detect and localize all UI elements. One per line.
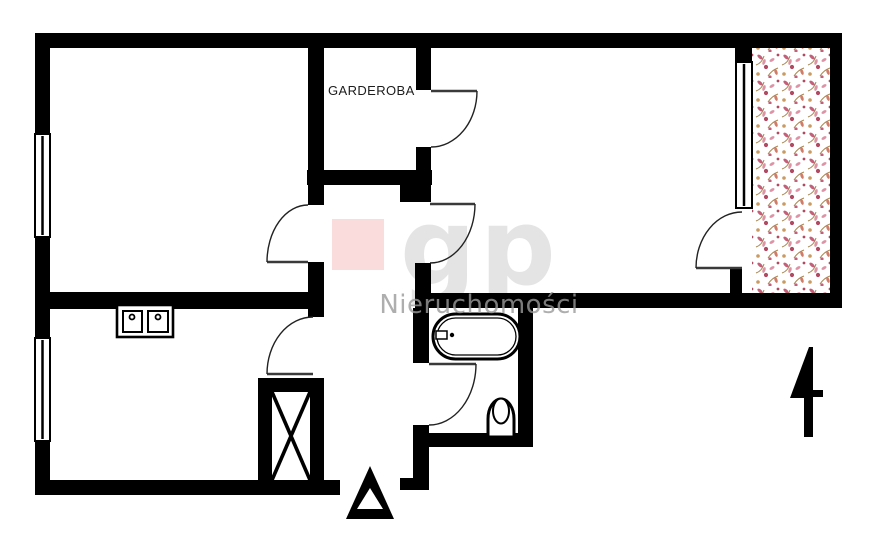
garderoba-label: GARDEROBA bbox=[328, 83, 415, 98]
watermark-subtitle: Nieruchomości bbox=[379, 290, 578, 320]
windows bbox=[35, 62, 752, 441]
wall-balcony-bottom-stub bbox=[730, 268, 742, 294]
window-balcony bbox=[736, 62, 752, 208]
door-swing-arc bbox=[267, 205, 308, 262]
door-balcony bbox=[696, 212, 742, 268]
wall-corridor-left-mid bbox=[308, 262, 324, 317]
floor-plan: gp bbox=[0, 0, 875, 534]
door-swing-arc bbox=[696, 212, 742, 268]
bathtub-icon bbox=[433, 314, 520, 359]
door-room-upper-left bbox=[267, 205, 308, 262]
wall-right-outer bbox=[830, 33, 842, 308]
north-arrow-head bbox=[790, 347, 813, 398]
balcony-floral-area bbox=[752, 48, 830, 293]
toilet-icon bbox=[488, 399, 514, 438]
window-left-lower bbox=[35, 338, 50, 441]
wall-bathroom-bottom bbox=[429, 433, 533, 447]
floor-plan-canvas: gp bbox=[0, 0, 875, 534]
door-swing-arc bbox=[429, 364, 476, 425]
elevator-shaft-icon bbox=[258, 378, 324, 481]
wall-hall-corner bbox=[400, 185, 431, 202]
north-arrow-icon bbox=[790, 347, 823, 437]
wall-entrance-stub bbox=[400, 478, 415, 490]
wall-top-outer bbox=[35, 33, 842, 48]
tub-faucet bbox=[436, 331, 447, 339]
wall-bottom-left bbox=[35, 480, 340, 495]
wall-garderoba-right-bottom bbox=[416, 147, 431, 170]
window-left-upper bbox=[35, 134, 50, 237]
door-swing-arc bbox=[267, 317, 313, 374]
wall-garderoba-right-top bbox=[416, 47, 431, 90]
toilet-bowl bbox=[493, 399, 509, 424]
wall-balcony-top-stub bbox=[735, 48, 752, 63]
watermark-logo-square bbox=[332, 219, 384, 270]
door-garderoba bbox=[431, 91, 477, 147]
north-arrow-stem bbox=[804, 393, 813, 437]
wall-bathroom-left-bottom bbox=[413, 425, 429, 490]
tub-drain bbox=[450, 333, 454, 337]
door-kitchen bbox=[267, 317, 313, 374]
door-bathroom bbox=[429, 364, 476, 425]
wall-garderoba-bottom bbox=[307, 170, 432, 185]
door-swing-arc bbox=[431, 91, 477, 147]
entrance-triangle-icon bbox=[346, 466, 394, 519]
north-arrow-tick bbox=[813, 390, 823, 397]
